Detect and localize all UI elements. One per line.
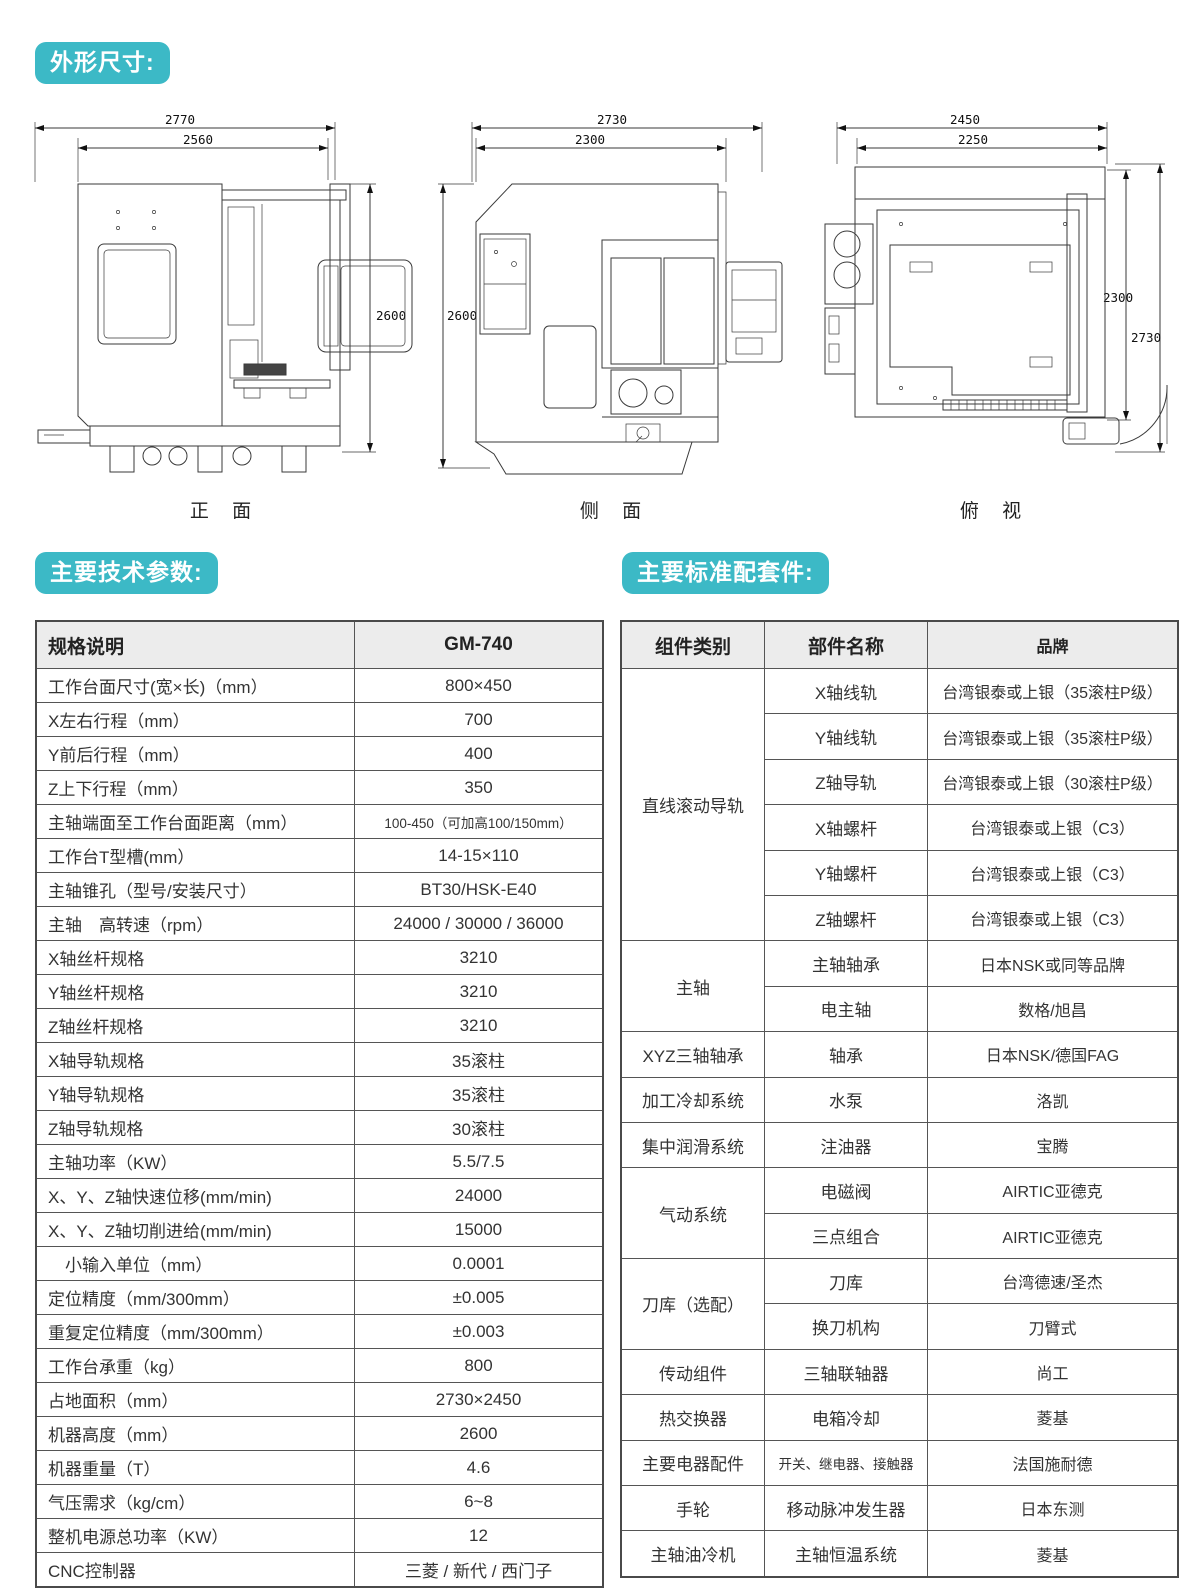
spec-row: 工作台承重（kg）800 xyxy=(36,1349,603,1383)
spec-label: X左右行程（mm） xyxy=(36,703,355,737)
top-view-drawing: 2450 2250 2300 2730 xyxy=(815,112,1175,523)
spec-label: CNC控制器 xyxy=(36,1553,355,1588)
spec-row: 小输入单位（mm）0.0001 xyxy=(36,1247,603,1281)
parts-row: 刀库（选配）刀库台湾德速/圣杰 xyxy=(621,1259,1178,1304)
spec-value: 4.6 xyxy=(355,1451,604,1485)
parts-row: 直线滚动导轨X轴线轨台湾银泰或上银（35滚柱P级） xyxy=(621,669,1178,714)
spec-header-model: GM-740 xyxy=(355,621,604,669)
spec-row: Z上下行程（mm）350 xyxy=(36,771,603,805)
top-dim-depth-inner: 2300 xyxy=(1103,290,1133,305)
parts-category: 加工冷却系统 xyxy=(621,1077,765,1122)
parts-brand: 刀臂式 xyxy=(928,1304,1179,1349)
side-dim-depth-inner: 2300 xyxy=(575,132,605,147)
spec-table-body: 工作台面尺寸(宽×长)（mm）800×450X左右行程（mm）700Y前后行程（… xyxy=(36,669,603,1588)
spec-value: ±0.005 xyxy=(355,1281,604,1315)
spec-label: 工作台T型槽(mm） xyxy=(36,839,355,873)
parts-row: 加工冷却系统水泵洛凯 xyxy=(621,1077,1178,1122)
spec-row: X轴丝杆规格3210 xyxy=(36,941,603,975)
spec-label: 重复定位精度（mm/300mm） xyxy=(36,1315,355,1349)
spec-label: Z轴丝杆规格 xyxy=(36,1009,355,1043)
spec-label: 定位精度（mm/300mm） xyxy=(36,1281,355,1315)
spec-row: X、Y、Z轴切削进给(mm/min)15000 xyxy=(36,1213,603,1247)
parts-brand: 台湾银泰或上银（30滚柱P级） xyxy=(928,759,1179,804)
spec-row: 机器重量（T）4.6 xyxy=(36,1451,603,1485)
parts-row: 主要电器配件开关、继电器、接触器法国施耐德 xyxy=(621,1440,1178,1485)
spec-label: 工作台面尺寸(宽×长)（mm） xyxy=(36,669,355,703)
parts-category: 主轴 xyxy=(621,941,765,1032)
spec-row: CNC控制器三菱 / 新代 / 西门子 xyxy=(36,1553,603,1588)
side-dim-depth-outer: 2730 xyxy=(597,112,627,127)
spec-label: Z上下行程（mm） xyxy=(36,771,355,805)
parts-brand: 日本NSK或同等品牌 xyxy=(928,941,1179,986)
section-title-specs: 主要技术参数: xyxy=(35,552,218,594)
spec-value: 800×450 xyxy=(355,669,604,703)
spec-row: 主轴端面至工作台面距离（mm）100-450（可加高100/150mm） xyxy=(36,805,603,839)
spec-row: Y轴导轨规格35滚柱 xyxy=(36,1077,603,1111)
parts-name: X轴线轨 xyxy=(765,669,928,714)
spec-value: BT30/HSK-E40 xyxy=(355,873,604,907)
front-dim-width-inner: 2560 xyxy=(183,132,213,147)
side-view-drawing: 2730 2300 2600 侧 面 xyxy=(430,112,800,523)
spec-label: X、Y、Z轴快速位移(mm/min) xyxy=(36,1179,355,1213)
top-view-caption: 俯 视 xyxy=(815,496,1175,523)
parts-brand: 菱基 xyxy=(928,1395,1179,1440)
spec-label: 主轴端面至工作台面距离（mm） xyxy=(36,805,355,839)
parts-header-brand: 品牌 xyxy=(928,621,1179,669)
parts-brand: 法国施耐德 xyxy=(928,1440,1179,1485)
parts-name: 电主轴 xyxy=(765,986,928,1031)
front-view-drawing: 2770 2560 2600 xyxy=(30,112,420,523)
parts-brand: 尚工 xyxy=(928,1349,1179,1394)
parts-name: 主轴轴承 xyxy=(765,941,928,986)
spec-row: 定位精度（mm/300mm）±0.005 xyxy=(36,1281,603,1315)
parts-category: 手轮 xyxy=(621,1486,765,1531)
parts-name: 刀库 xyxy=(765,1259,928,1304)
parts-name: 注油器 xyxy=(765,1122,928,1167)
spec-label: 工作台承重（kg） xyxy=(36,1349,355,1383)
spec-row: X、Y、Z轴快速位移(mm/min)24000 xyxy=(36,1179,603,1213)
spec-label: 主轴 高转速（rpm） xyxy=(36,907,355,941)
spec-value: 3210 xyxy=(355,941,604,975)
spec-value: 2730×2450 xyxy=(355,1383,604,1417)
parts-category: XYZ三轴轴承 xyxy=(621,1032,765,1077)
parts-row: 主轴主轴轴承日本NSK或同等品牌 xyxy=(621,941,1178,986)
spec-row: 主轴 高转速（rpm）24000 / 30000 / 36000 xyxy=(36,907,603,941)
side-dim-height: 2600 xyxy=(447,308,477,323)
spec-label: 主轴功率（KW） xyxy=(36,1145,355,1179)
spec-label: 主轴锥孔（型号/安装尺寸） xyxy=(36,873,355,907)
spec-row: 主轴功率（KW）5.5/7.5 xyxy=(36,1145,603,1179)
parts-row: 集中润滑系统注油器宝腾 xyxy=(621,1122,1178,1167)
spec-header-name: 规格说明 xyxy=(36,621,355,669)
parts-name: 轴承 xyxy=(765,1032,928,1077)
parts-brand: 台湾银泰或上银（C3） xyxy=(928,850,1179,895)
parts-brand: AIRTIC亚德克 xyxy=(928,1213,1179,1258)
spec-value: 14-15×110 xyxy=(355,839,604,873)
parts-category: 传动组件 xyxy=(621,1349,765,1394)
spec-row: 占地面积（mm）2730×2450 xyxy=(36,1383,603,1417)
parts-row: 热交换器电箱冷却菱基 xyxy=(621,1395,1178,1440)
side-view-caption: 侧 面 xyxy=(430,496,800,523)
side-view-svg: 2730 2300 2600 xyxy=(430,112,800,494)
parts-header-row: 组件类别 部件名称 品牌 xyxy=(621,621,1178,669)
parts-brand: 数格/旭昌 xyxy=(928,986,1179,1031)
parts-category: 热交换器 xyxy=(621,1395,765,1440)
spec-value: 35滚柱 xyxy=(355,1077,604,1111)
spec-value: 700 xyxy=(355,703,604,737)
spec-label: Z轴导轨规格 xyxy=(36,1111,355,1145)
spec-label: 整机电源总功率（KW） xyxy=(36,1519,355,1553)
section-title-parts: 主要标准配套件: xyxy=(622,552,829,594)
spec-row: 气压需求（kg/cm）6~8 xyxy=(36,1485,603,1519)
parts-name: 移动脉冲发生器 xyxy=(765,1486,928,1531)
spec-value: 15000 xyxy=(355,1213,604,1247)
parts-name: 三点组合 xyxy=(765,1213,928,1258)
parts-row: 气动系统电磁阀AIRTIC亚德克 xyxy=(621,1168,1178,1213)
parts-category: 气动系统 xyxy=(621,1168,765,1259)
spec-row: 机器高度（mm）2600 xyxy=(36,1417,603,1451)
parts-category: 主轴油冷机 xyxy=(621,1531,765,1577)
parts-brand: 洛凯 xyxy=(928,1077,1179,1122)
spec-label: 机器高度（mm） xyxy=(36,1417,355,1451)
parts-name: 水泵 xyxy=(765,1077,928,1122)
spec-row: Z轴丝杆规格3210 xyxy=(36,1009,603,1043)
spec-value: 400 xyxy=(355,737,604,771)
parts-brand: 台湾银泰或上银（C3） xyxy=(928,805,1179,850)
parts-name: 开关、继电器、接触器 xyxy=(765,1440,928,1485)
spec-row: 整机电源总功率（KW）12 xyxy=(36,1519,603,1553)
parts-header-name: 部件名称 xyxy=(765,621,928,669)
parts-brand: 台湾银泰或上银（C3） xyxy=(928,895,1179,940)
parts-name: Y轴螺杆 xyxy=(765,850,928,895)
section-title-dimensions: 外形尺寸: xyxy=(35,42,170,84)
parts-row: 手轮移动脉冲发生器日本东测 xyxy=(621,1486,1178,1531)
parts-name: 主轴恒温系统 xyxy=(765,1531,928,1577)
spec-value: 800 xyxy=(355,1349,604,1383)
spec-label: 占地面积（mm） xyxy=(36,1383,355,1417)
spec-value: 12 xyxy=(355,1519,604,1553)
spec-row: 重复定位精度（mm/300mm）±0.003 xyxy=(36,1315,603,1349)
parts-name: Z轴螺杆 xyxy=(765,895,928,940)
spec-label: Y轴丝杆规格 xyxy=(36,975,355,1009)
spec-label: Y轴导轨规格 xyxy=(36,1077,355,1111)
parts-name: Z轴导轨 xyxy=(765,759,928,804)
spec-value: 100-450（可加高100/150mm） xyxy=(355,805,604,839)
parts-brand: 日本东测 xyxy=(928,1486,1179,1531)
parts-brand: AIRTIC亚德克 xyxy=(928,1168,1179,1213)
parts-category: 集中润滑系统 xyxy=(621,1122,765,1167)
parts-category: 主要电器配件 xyxy=(621,1440,765,1485)
spec-label: 小输入单位（mm） xyxy=(36,1247,355,1281)
parts-brand: 台湾银泰或上银（35滚柱P级） xyxy=(928,714,1179,759)
parts-row: XYZ三轴轴承轴承日本NSK/德国FAG xyxy=(621,1032,1178,1077)
parts-brand: 宝腾 xyxy=(928,1122,1179,1167)
spec-value: 0.0001 xyxy=(355,1247,604,1281)
parts-row: 传动组件三轴联轴器尚工 xyxy=(621,1349,1178,1394)
top-view-svg: 2450 2250 2300 2730 xyxy=(815,112,1175,494)
spec-row: 工作台面尺寸(宽×长)（mm）800×450 xyxy=(36,669,603,703)
front-view-svg: 2770 2560 2600 xyxy=(30,112,420,494)
parts-name: 电磁阀 xyxy=(765,1168,928,1213)
parts-name: 换刀机构 xyxy=(765,1304,928,1349)
spec-value: 3210 xyxy=(355,975,604,1009)
spec-value: 24000 xyxy=(355,1179,604,1213)
spec-header-row: 规格说明 GM-740 xyxy=(36,621,603,669)
spec-row: X轴导轨规格35滚柱 xyxy=(36,1043,603,1077)
spec-row: 工作台T型槽(mm）14-15×110 xyxy=(36,839,603,873)
spec-label: Y前后行程（mm） xyxy=(36,737,355,771)
parts-name: 电箱冷却 xyxy=(765,1395,928,1440)
parts-row: 主轴油冷机主轴恒温系统菱基 xyxy=(621,1531,1178,1577)
spec-row: Y前后行程（mm）400 xyxy=(36,737,603,771)
spec-value: 6~8 xyxy=(355,1485,604,1519)
parts-category: 刀库（选配） xyxy=(621,1259,765,1350)
spec-value: 24000 / 30000 / 36000 xyxy=(355,907,604,941)
spec-value: 350 xyxy=(355,771,604,805)
front-dim-width-outer: 2770 xyxy=(165,112,195,127)
parts-name: X轴螺杆 xyxy=(765,805,928,850)
parts-brand: 日本NSK/德国FAG xyxy=(928,1032,1179,1077)
front-view-caption: 正 面 xyxy=(30,496,420,523)
parts-name: Y轴线轨 xyxy=(765,714,928,759)
spec-table: 规格说明 GM-740 工作台面尺寸(宽×长)（mm）800×450X左右行程（… xyxy=(35,620,604,1588)
spec-label: X、Y、Z轴切削进给(mm/min) xyxy=(36,1213,355,1247)
parts-category: 直线滚动导轨 xyxy=(621,669,765,941)
parts-brand: 台湾银泰或上银（35滚柱P级） xyxy=(928,669,1179,714)
parts-brand: 菱基 xyxy=(928,1531,1179,1577)
parts-name: 三轴联轴器 xyxy=(765,1349,928,1394)
spec-label: X轴导轨规格 xyxy=(36,1043,355,1077)
parts-table-body: 直线滚动导轨X轴线轨台湾银泰或上银（35滚柱P级）Y轴线轨台湾银泰或上银（35滚… xyxy=(621,669,1178,1577)
spec-value: 三菱 / 新代 / 西门子 xyxy=(355,1553,604,1588)
spec-row: Y轴丝杆规格3210 xyxy=(36,975,603,1009)
parts-header-category: 组件类别 xyxy=(621,621,765,669)
spec-label: 气压需求（kg/cm） xyxy=(36,1485,355,1519)
spec-value: 30滚柱 xyxy=(355,1111,604,1145)
top-dim-width-inner: 2250 xyxy=(958,132,988,147)
spec-value: 2600 xyxy=(355,1417,604,1451)
spec-value: 5.5/7.5 xyxy=(355,1145,604,1179)
spec-row: Z轴导轨规格30滚柱 xyxy=(36,1111,603,1145)
spec-label: X轴丝杆规格 xyxy=(36,941,355,975)
parts-brand: 台湾德速/圣杰 xyxy=(928,1259,1179,1304)
top-dim-width-outer: 2450 xyxy=(950,112,980,127)
spec-value: ±0.003 xyxy=(355,1315,604,1349)
front-dim-height: 2600 xyxy=(376,308,406,323)
spec-value: 3210 xyxy=(355,1009,604,1043)
spec-row: X左右行程（mm）700 xyxy=(36,703,603,737)
parts-table: 组件类别 部件名称 品牌 直线滚动导轨X轴线轨台湾银泰或上银（35滚柱P级）Y轴… xyxy=(620,620,1179,1578)
top-dim-depth-outer: 2730 xyxy=(1131,330,1161,345)
spec-row: 主轴锥孔（型号/安装尺寸）BT30/HSK-E40 xyxy=(36,873,603,907)
spec-value: 35滚柱 xyxy=(355,1043,604,1077)
spec-label: 机器重量（T） xyxy=(36,1451,355,1485)
